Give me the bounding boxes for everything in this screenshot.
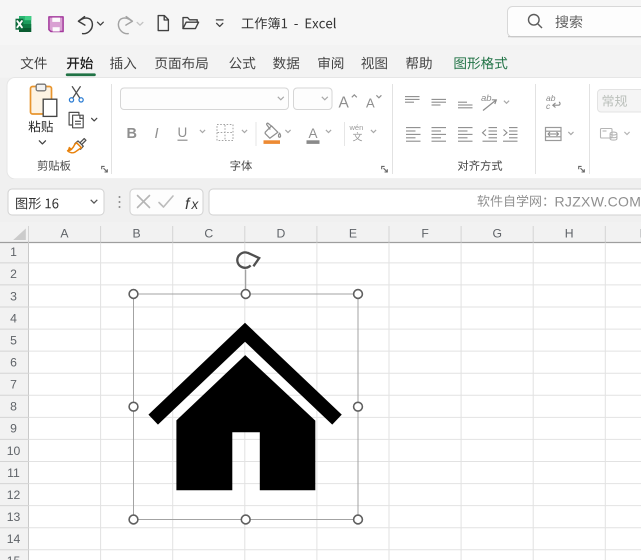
- svg-text:15: 15: [7, 554, 21, 560]
- svg-text:7: 7: [10, 378, 17, 392]
- svg-text:A: A: [309, 126, 318, 141]
- svg-text:U: U: [178, 125, 188, 140]
- svg-text:A: A: [60, 227, 69, 241]
- svg-text:wén: wén: [349, 123, 364, 132]
- svg-text:11: 11: [7, 466, 20, 480]
- svg-text:6: 6: [10, 356, 17, 370]
- svg-text:ab: ab: [481, 93, 492, 104]
- svg-text:F: F: [421, 227, 428, 241]
- svg-text:B: B: [133, 227, 141, 241]
- svg-text:C: C: [204, 227, 213, 241]
- svg-text:2: 2: [10, 267, 17, 281]
- svg-text:12: 12: [7, 488, 21, 502]
- svg-text:1: 1: [10, 245, 17, 259]
- svg-text:8: 8: [10, 400, 17, 414]
- svg-text:RJZXW.COM: RJZXW.COM: [555, 193, 641, 209]
- svg-text:4: 4: [10, 311, 17, 325]
- svg-text:A: A: [366, 96, 375, 111]
- svg-text:5: 5: [10, 333, 17, 347]
- svg-text:A: A: [339, 95, 350, 112]
- svg-text:9: 9: [10, 422, 17, 436]
- svg-text:E: E: [349, 227, 357, 241]
- svg-text:H: H: [565, 227, 574, 241]
- svg-text:B: B: [127, 126, 137, 142]
- svg-text:D: D: [276, 227, 285, 241]
- svg-text:13: 13: [7, 510, 21, 524]
- svg-text:14: 14: [7, 532, 21, 546]
- svg-text:G: G: [492, 227, 501, 241]
- svg-text:I: I: [155, 126, 159, 142]
- svg-text:x: x: [191, 197, 200, 212]
- svg-text:10: 10: [7, 444, 21, 458]
- svg-text:3: 3: [10, 289, 17, 303]
